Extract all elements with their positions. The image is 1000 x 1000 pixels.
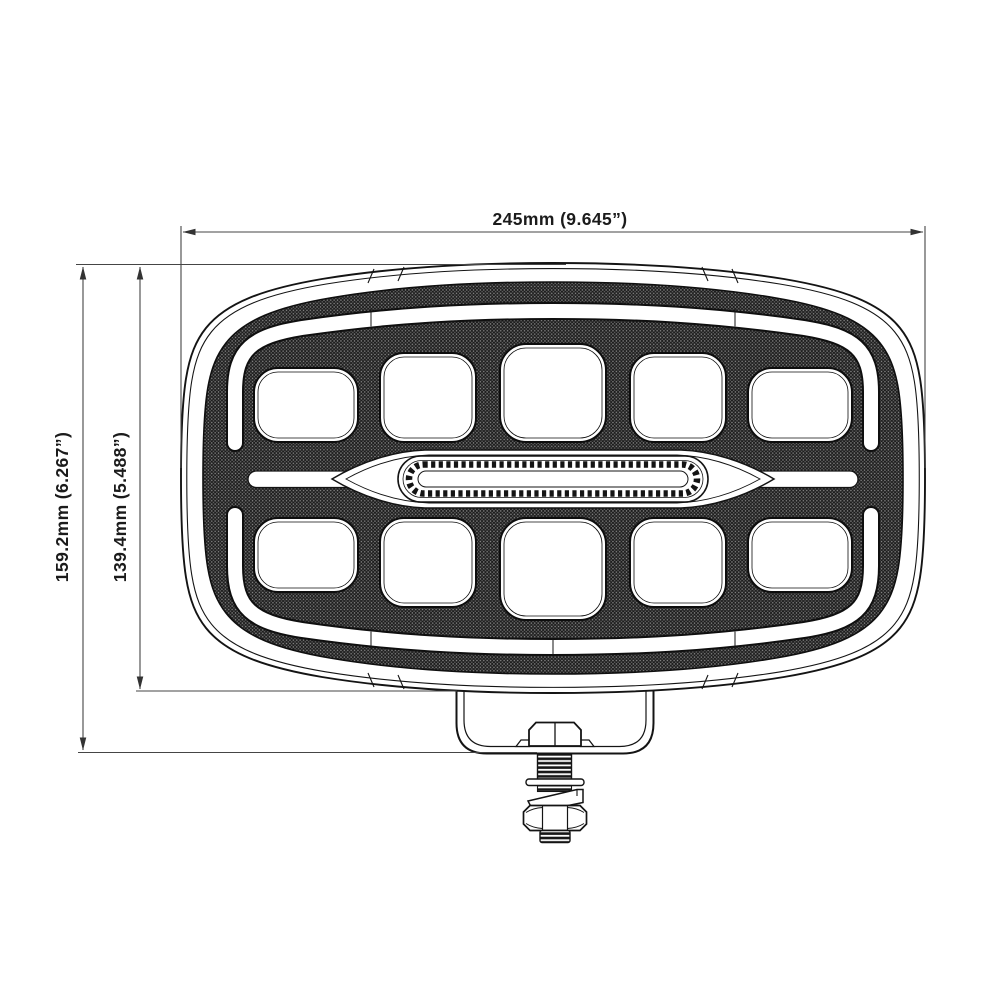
width-dimension-label: 245mm (9.645”) (493, 209, 628, 229)
reflector-cutout (630, 353, 726, 442)
reflector-cutout (630, 518, 726, 607)
reflector-cutout (500, 518, 606, 620)
flat-washer (526, 779, 584, 786)
total-height-dimension-label: 159.2mm (6.267”) (52, 432, 72, 582)
technical-drawing: 245mm (9.645”) 159.2mm (6.267”) 139.4mm … (0, 0, 1000, 1000)
lamp-body (181, 263, 925, 693)
threaded-stud-mid (538, 786, 572, 792)
led-bar-inner (418, 471, 688, 487)
body-height-dimension-label: 139.4mm (5.488”) (110, 432, 130, 582)
reflector-cutout (380, 518, 476, 607)
center-led-strip (332, 450, 774, 508)
reflector-cutout (380, 353, 476, 442)
reflector-cutout (500, 344, 606, 442)
reflector-cutout (748, 518, 852, 592)
threaded-stud-end (540, 831, 570, 843)
reflector-cutout (254, 518, 358, 592)
mounting-hardware (457, 680, 654, 843)
reflector-cutout (254, 368, 358, 442)
drawing-sheet: 245mm (9.645”) 159.2mm (6.267”) 139.4mm … (0, 0, 1000, 1000)
reflector-cutout (748, 368, 852, 442)
